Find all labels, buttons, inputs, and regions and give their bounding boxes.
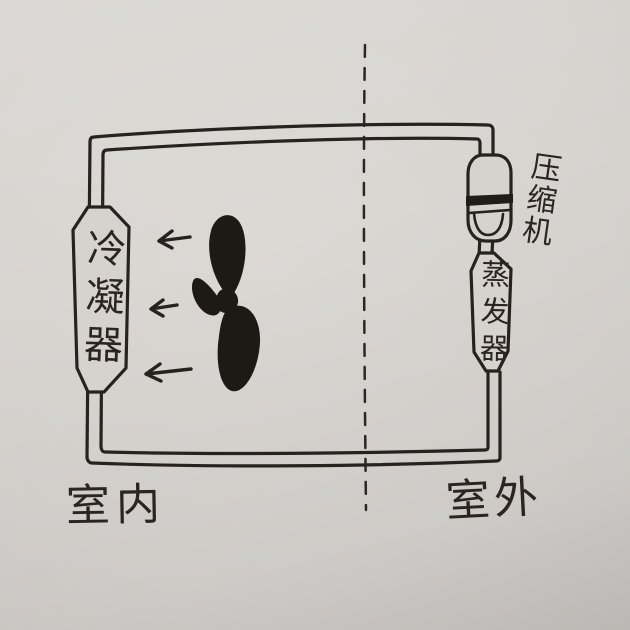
compressor-vessel [466,155,513,241]
airflow-arrows [146,231,191,381]
paper-photo: 冷凝器 压缩机 蒸发器 室内 室外 [0,0,630,630]
condenser-label: 冷凝器 [79,227,123,372]
airflow-arrow-bottom [146,364,191,381]
refrigerant-pipe-loop [87,124,500,466]
fan-icon [192,215,260,391]
fan-blade-bottom [218,306,260,392]
fan-blade-top [209,215,245,297]
outdoor-zone-label: 室外 [445,476,543,525]
pipe-outer-line [87,124,500,466]
evaporator-label: 蒸发器 [476,259,507,370]
indoor-outdoor-divider-dashed-line [364,45,366,510]
airflow-arrow-middle [151,300,177,316]
indoor-zone-label: 室内 [66,483,167,529]
pipe-inner-line [101,138,488,453]
airflow-arrow-top [159,231,190,248]
